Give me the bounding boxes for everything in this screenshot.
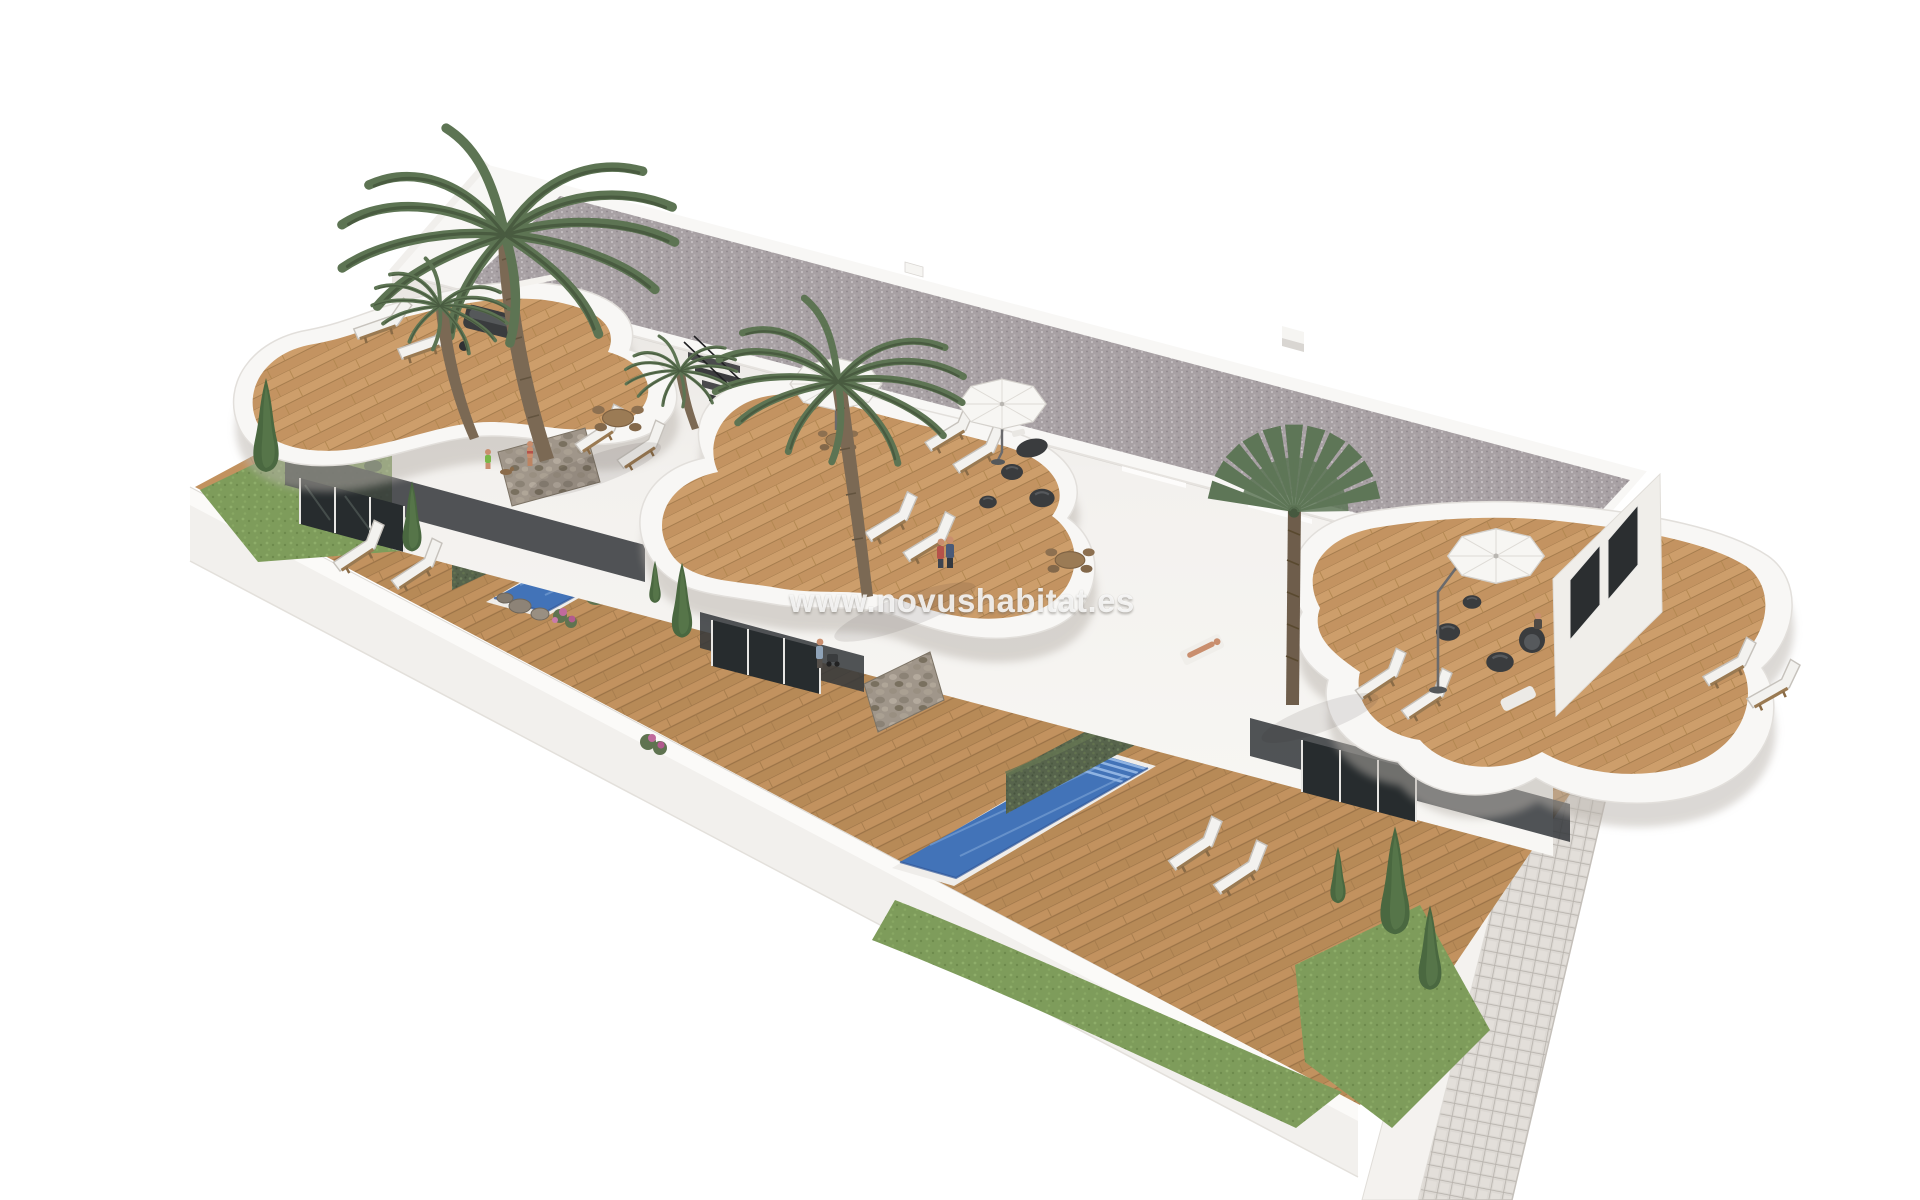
beanbag-chair	[1436, 623, 1460, 641]
watermark-text: www.novushabitat.es	[789, 584, 1135, 617]
parasol	[1448, 529, 1545, 584]
person	[527, 441, 533, 466]
egg-chair	[1519, 627, 1545, 653]
beanbag-chair	[1463, 595, 1482, 609]
parasol	[958, 379, 1046, 429]
beanbag-chair	[1486, 652, 1514, 672]
person	[485, 449, 491, 469]
render-canvas: www.novushabitat.es	[0, 0, 1920, 1200]
person-seated	[1534, 613, 1542, 629]
